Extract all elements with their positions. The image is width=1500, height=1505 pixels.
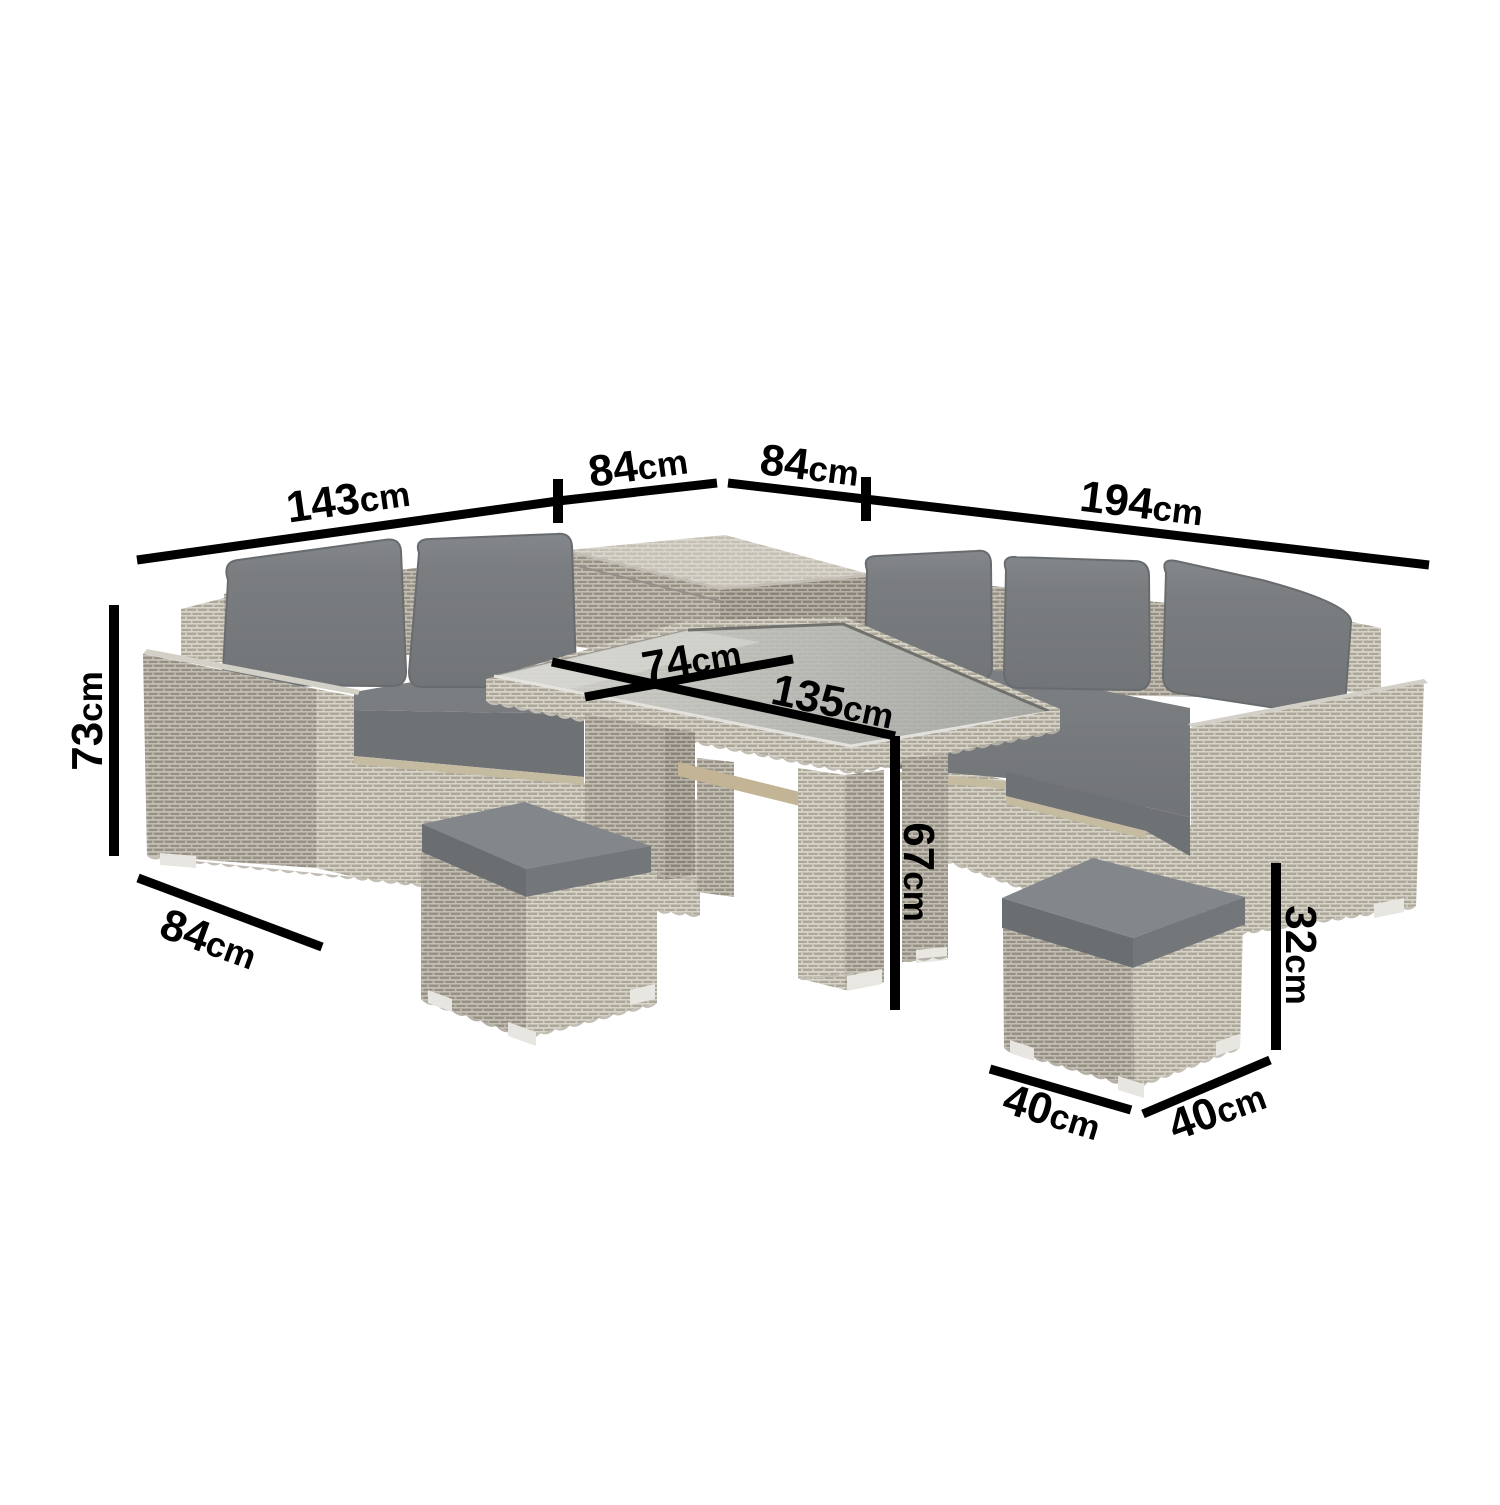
svg-text:67cm: 67cm xyxy=(894,822,943,922)
svg-text:32cm: 32cm xyxy=(1276,905,1325,1005)
svg-text:73cm: 73cm xyxy=(63,671,112,771)
